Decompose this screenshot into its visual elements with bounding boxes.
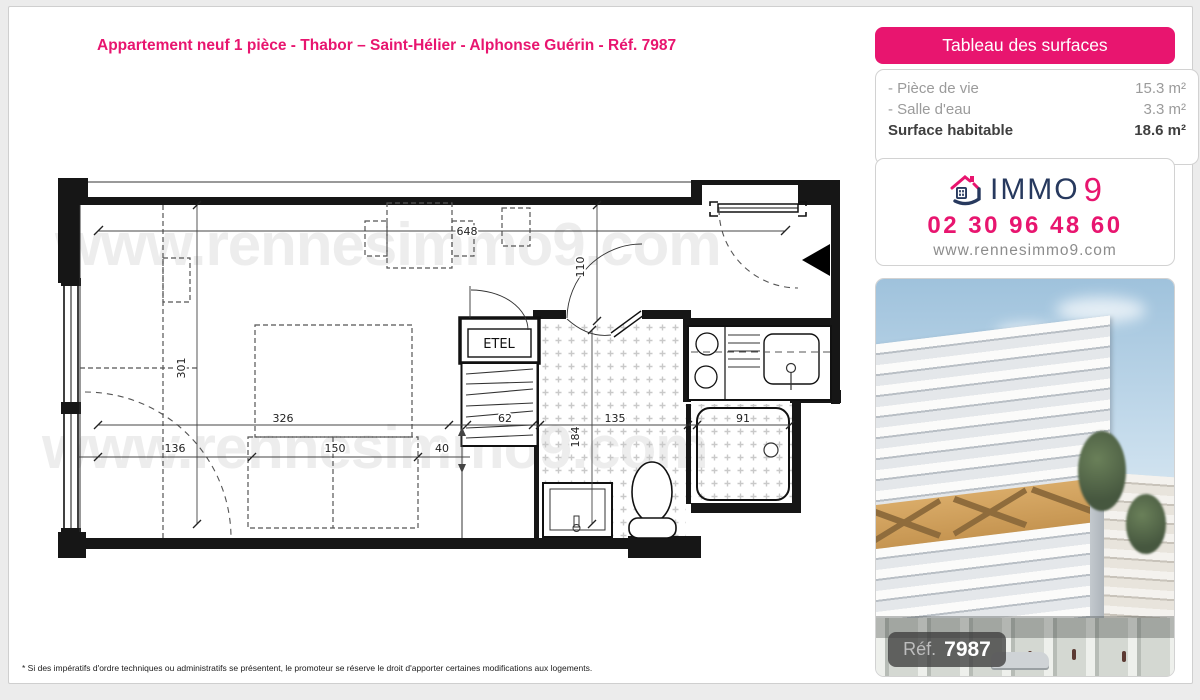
dim-301: 301 xyxy=(175,358,188,379)
entrance-arrow-icon xyxy=(802,244,830,276)
ref-label: Réf. xyxy=(903,639,936,660)
ref-value: 7987 xyxy=(944,638,991,662)
surface-total-value: 18.6 m² xyxy=(1134,120,1186,141)
shower-drain-icon xyxy=(764,443,778,457)
chair-outline xyxy=(163,258,190,302)
x-brace xyxy=(953,488,1028,537)
kitchenette xyxy=(688,326,831,400)
agency-logo: IMMO 9 xyxy=(876,171,1174,209)
page-title: Appartement neuf 1 pièce - Thabor – Sain… xyxy=(97,37,676,55)
pedestrian xyxy=(1122,651,1126,662)
surface-total-label: Surface habitable xyxy=(888,120,1013,141)
floor-plan-drawing: ETEL xyxy=(58,178,844,570)
washbasin-icon xyxy=(543,483,612,537)
surface-row: - Salle d'eau 3.3 m² xyxy=(888,99,1186,120)
window-left xyxy=(61,278,81,536)
french-door-swing xyxy=(85,392,231,538)
chair-outline xyxy=(365,221,387,256)
brand-digit: 9 xyxy=(1084,171,1102,209)
tree xyxy=(1126,494,1166,554)
dim-40: 40 xyxy=(435,442,449,455)
agency-card: IMMO 9 02 30 96 48 60 www.rennesimmo9.co… xyxy=(875,158,1175,266)
surface-row-value: 15.3 m² xyxy=(1135,78,1186,99)
brand-name: IMMO xyxy=(990,173,1080,207)
table-outline xyxy=(387,203,452,268)
pedestrian xyxy=(1072,649,1076,660)
house-icon xyxy=(948,173,986,207)
dim-136: 136 xyxy=(165,442,186,455)
agency-phone[interactable]: 02 30 96 48 60 xyxy=(876,212,1174,240)
flyer-page: Appartement neuf 1 pièce - Thabor – Sain… xyxy=(0,0,1200,700)
cabinet-outline xyxy=(502,208,530,246)
dim-184: 184 xyxy=(569,427,582,448)
dim-326: 326 xyxy=(273,412,294,425)
surface-table-header: Tableau des surfaces xyxy=(875,27,1175,64)
building-photo: Réf. 7987 xyxy=(875,278,1175,677)
dim-62: 62 xyxy=(498,412,512,425)
surface-row-label: - Salle d'eau xyxy=(888,99,971,120)
dim-110: 110 xyxy=(574,257,587,278)
surface-row-label: - Pièce de vie xyxy=(888,78,979,99)
entrance-door xyxy=(710,202,806,288)
surface-row-value: 3.3 m² xyxy=(1143,99,1186,120)
dim-648: 648 xyxy=(457,225,478,238)
surface-total-row: Surface habitable 18.6 m² xyxy=(888,120,1186,141)
etel-label: ETEL xyxy=(483,337,515,352)
tree xyxy=(1078,431,1126,511)
dim-91: 91 xyxy=(736,412,750,425)
ref-badge: Réf. 7987 xyxy=(888,632,1006,667)
surface-row: - Pièce de vie 15.3 m² xyxy=(888,78,1186,99)
x-brace xyxy=(875,498,941,547)
wardrobe xyxy=(462,363,538,446)
dim-135: 135 xyxy=(605,412,626,425)
dim-150: 150 xyxy=(325,442,346,455)
agency-website[interactable]: www.rennesimmo9.com xyxy=(876,242,1174,260)
surface-table: - Pièce de vie 15.3 m² - Salle d'eau 3.3… xyxy=(875,69,1199,165)
floor-plan: ETEL xyxy=(58,178,844,570)
legal-footnote: * Si des impératifs d'ordre techniques o… xyxy=(22,663,592,673)
